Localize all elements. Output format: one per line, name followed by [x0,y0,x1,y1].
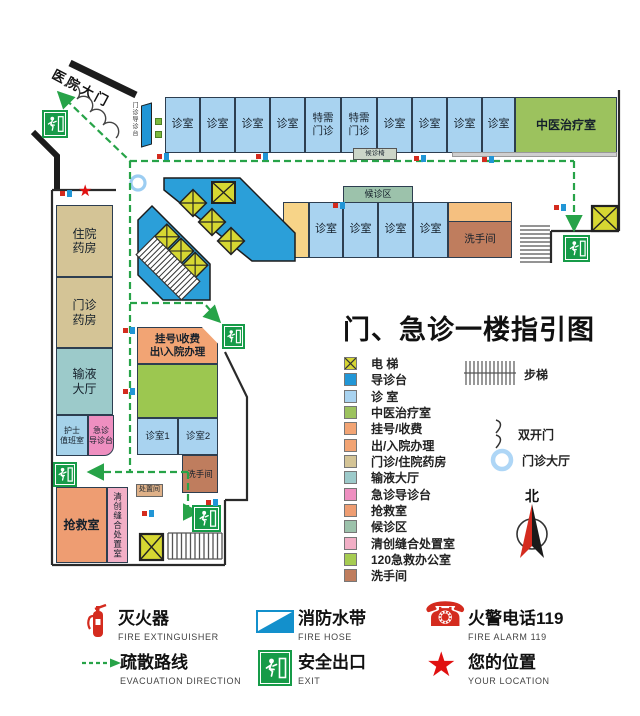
legend-swatch [344,373,357,386]
legend-label: 120急救办公室 [371,551,451,568]
fire-hose-item: 消防水带 FIRE HOSE [298,604,366,642]
legend-swatch [344,488,357,501]
fire-extinguisher-item: 灭火器 FIRE EXTINGUISHER [118,604,219,642]
legend-label: 急诊导诊台 [371,486,431,503]
legend-label: 诊 室 [371,388,398,405]
legend-swatch [344,455,357,468]
fire-extinguisher-zh: 灭火器 [118,604,219,629]
fire-equipment-icon [157,153,170,160]
legend-swatch [344,537,357,550]
legend-double-door-label: 双开门 [518,426,554,443]
legend-label: 洗手间 [371,567,407,584]
legend-swatch [344,553,357,566]
evacuation-zh: 疏散路线 [120,648,241,673]
compass-icon [504,500,560,564]
legend-label: 输液大厅 [371,469,419,486]
legend-label: 出/入院办理 [371,437,434,454]
legend-swatch [344,569,357,582]
your-location-zh: 您的位置 [468,648,550,673]
escalator-lower [136,206,210,300]
exit-sign [53,462,77,487]
stairs-icon [464,360,516,386]
fire-phone-icon: ☎ [424,598,466,632]
hall-ring-icon [131,176,145,190]
fire-equipment-icon [554,204,567,211]
door-swing-arcs [64,83,119,138]
legend-swatch [344,471,357,484]
fire-equipment-icon [333,202,346,209]
exit-sign [192,505,221,532]
your-location-en: YOUR LOCATION [468,676,550,686]
legend-row: 中医治疗室 [344,405,431,419]
page-title: 门、急诊一楼指引图 [343,308,595,347]
exit-sign [563,235,590,262]
fire-equipment-icon [142,510,155,517]
legend-row: 候诊区 [344,519,407,533]
exit-en: EXIT [298,676,366,686]
hall-ring-legend-icon [488,446,516,474]
stairs-right [520,226,550,262]
your-location-star-icon: ★ [78,184,92,200]
elevator-right [592,206,618,231]
legend-swatch-elevator [344,357,357,370]
fire-hose-en: FIRE HOSE [298,632,366,642]
legend-swatch [344,422,357,435]
fire-equipment-icon [123,388,136,395]
exit-sign [222,324,245,349]
floor-guide-map: 诊室 诊室 诊室 诊室 特需门诊 特需门诊 诊室 诊室 诊室 诊室 中医治疗室 … [0,0,640,716]
legend-row: 120急救办公室 [344,552,451,566]
fire-equipment-icon [123,327,136,334]
legend-label: 中医治疗室 [371,404,431,421]
evacuation-item: 疏散路线 EVACUATION DIRECTION [120,648,241,686]
legend-hall-label: 门诊大厅 [522,452,570,469]
your-location-item: 您的位置 YOUR LOCATION [468,648,550,686]
legend-row: 急诊导诊台 [344,487,431,501]
legend-label: 导诊台 [371,371,407,388]
fire-equipment-icon [256,153,269,160]
exit-zh: 安全出口 [298,648,366,673]
legend-swatch [344,504,357,517]
fire-extinguisher-icon [86,602,110,642]
legend-row: 导诊台 [344,372,407,386]
fire-extinguisher-en: FIRE EXTINGUISHER [118,632,219,642]
legend-row: 洗手间 [344,568,407,582]
legend-row: 门诊/住院药房 [344,454,446,468]
fire-equipment-icon [414,155,427,162]
legend-row: 电 梯 [344,356,398,370]
legend-row: 诊 室 [344,389,398,403]
legend-row: 出/入院办理 [344,438,434,452]
legend-swatch [344,439,357,452]
legend-stairs-label: 步梯 [524,366,548,383]
elevator-bottom [140,534,163,560]
legend-label: 候诊区 [371,518,407,535]
fire-alarm-zh: 火警电话119 [468,604,563,629]
fire-equipment-icon [206,499,219,506]
exit-legend-icon [258,650,292,686]
exit-item: 安全出口 EXIT [298,648,366,686]
legend-row: 清创缝合处置室 [344,536,455,550]
legend-label: 抢救室 [371,502,407,519]
legend-swatch [344,406,357,419]
fire-alarm-item: 火警电话119 FIRE ALARM 119 [468,604,563,642]
legend-label: 清创缝合处置室 [371,535,455,552]
evacuation-en: EVACUATION DIRECTION [120,676,241,686]
fire-hose-zh: 消防水带 [298,604,366,629]
entrance-wall [33,132,57,190]
legend-swatch [344,390,357,403]
legend-row: 挂号/收费 [344,421,422,435]
fire-hose-icon [256,610,294,633]
legend-row: 输液大厅 [344,470,419,484]
fire-alarm-en: FIRE ALARM 119 [468,632,563,642]
legend-label: 门诊/住院药房 [371,453,446,470]
legend-label: 电 梯 [371,355,398,372]
your-location-legend-icon: ★ [426,648,456,682]
exit-sign [42,110,68,138]
legend-label: 挂号/收费 [371,420,422,437]
legend-row: 抢救室 [344,503,407,517]
fire-equipment-icon [60,190,73,197]
stairs-bottom [168,533,222,559]
evacuation-route-icon [82,656,124,670]
fire-equipment-icon [482,156,495,163]
legend-swatch [344,520,357,533]
